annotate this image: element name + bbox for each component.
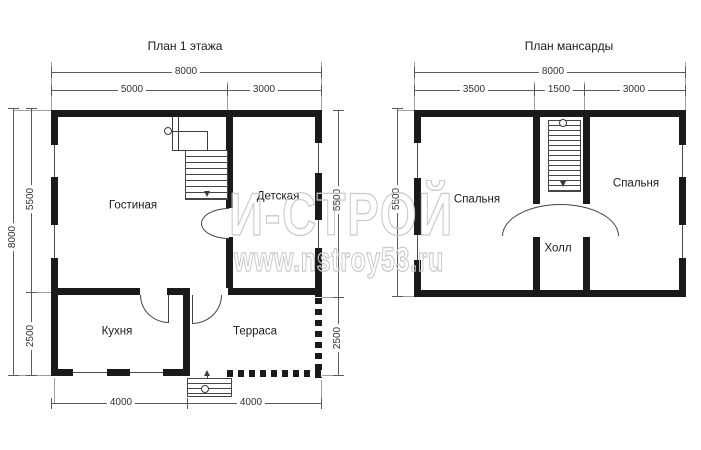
window: [51, 225, 58, 258]
dim-label-left-5500: 5500: [25, 185, 37, 213]
hall-wall-left: [533, 237, 540, 290]
door-swing-terrace: [192, 295, 222, 324]
hall-wall-right: [583, 237, 590, 290]
stair-guide-line: [178, 117, 179, 150]
outer-wall-left: [414, 110, 421, 297]
stair-guide-line: [172, 117, 173, 150]
dimension-tick: [333, 110, 344, 111]
porch-steps: [187, 378, 232, 397]
extension-line: [13, 110, 51, 111]
dimension-tick: [51, 85, 52, 96]
window: [51, 145, 58, 177]
dimension-tick: [333, 297, 344, 298]
dimension-tick: [414, 67, 415, 78]
kitchen-wall-right: [183, 295, 190, 376]
dimension-tick: [392, 108, 403, 109]
door-swing-kitchen: [140, 295, 169, 323]
plan1-title: План 1 этажа: [148, 40, 223, 52]
stair-start-circle: [164, 127, 172, 135]
dimension-tick: [187, 398, 188, 409]
dim-label-bottom-4000-right: 4000: [237, 397, 265, 409]
hall-arch-opening: [502, 204, 619, 236]
window: [414, 235, 421, 260]
room-label-kitchen: Кухня: [102, 326, 133, 338]
room-label-terrace: Терраса: [233, 326, 277, 338]
outer-wall-right: [315, 110, 322, 297]
dim-label-attic-5500: 5500: [391, 185, 403, 213]
outer-wall-bottom: [414, 290, 686, 297]
stair-landing-line: [173, 131, 207, 132]
dimension-tick: [584, 85, 585, 96]
dimension-tick: [26, 292, 37, 293]
window: [315, 220, 322, 248]
door-opening: [190, 288, 228, 295]
outer-wall-top: [51, 110, 322, 117]
dimension-tick: [321, 67, 322, 78]
interior-wall-vertical: [226, 117, 233, 288]
dim-label-top-8000: 8000: [172, 66, 200, 78]
dimension-line: [51, 90, 322, 91]
dimension-tick: [51, 67, 52, 78]
dimension-tick: [414, 85, 415, 96]
dimension-tick: [685, 67, 686, 78]
dimension-tick: [321, 398, 322, 409]
window: [679, 225, 686, 258]
dim-label-attic-3500: 3500: [460, 84, 488, 96]
dimension-tick: [8, 108, 19, 109]
dim-label-bottom-4000-left: 4000: [107, 397, 135, 409]
dimension-tick: [534, 85, 535, 96]
room-label-hall: Холл: [544, 243, 571, 255]
room-label-bedroom-right: Спальня: [613, 178, 659, 190]
plan2-title: План мансарды: [525, 40, 614, 52]
stair-arrow: [204, 191, 210, 197]
dim-label-attic-8000: 8000: [539, 66, 567, 78]
porch-arrow: [204, 370, 210, 376]
window: [73, 369, 107, 376]
dim-label-right-2500: 2500: [332, 324, 344, 352]
outer-wall-top: [414, 110, 686, 117]
window: [679, 145, 686, 177]
window: [130, 369, 163, 376]
interior-wall-horizontal: [51, 288, 322, 295]
dimension-tick: [51, 398, 52, 409]
stair-start-circle: [559, 119, 567, 127]
window: [414, 143, 421, 178]
dimension-tick: [26, 108, 37, 109]
room-label-bedroom-left: Спальня: [454, 194, 500, 206]
door-swing-kids-room: [201, 208, 229, 239]
window: [315, 143, 322, 173]
room-label-living: Гостиная: [109, 200, 157, 212]
dimension-tick: [8, 375, 19, 376]
stair-enclosure-wall-left: [533, 117, 540, 204]
stair-arrow: [560, 181, 566, 187]
dim-label-right-5500: 5500: [332, 186, 344, 214]
dashed-terrace-edge-right: [315, 298, 322, 378]
dim-label-left-2500: 2500: [25, 322, 37, 350]
dashed-terrace-edge-bottom: [227, 370, 322, 377]
dimension-tick: [321, 85, 322, 96]
room-label-kids: Детская: [257, 191, 300, 203]
dimension-tick: [333, 375, 344, 376]
dimension-tick: [26, 375, 37, 376]
stair-enclosure-wall-right: [583, 117, 590, 204]
dimension-tick: [227, 85, 228, 96]
porch-start-circle: [201, 385, 209, 393]
watermark-url: www.nstroy53.ru: [234, 243, 444, 277]
extension-line: [397, 110, 414, 111]
extension-line: [54, 378, 55, 404]
dim-label-3000: 3000: [250, 84, 278, 96]
dim-label-attic-1500: 1500: [545, 84, 573, 96]
dim-label-5000: 5000: [118, 84, 146, 96]
kitchen-wall-bottom: [51, 369, 190, 376]
dim-label-left-8000: 8000: [7, 223, 19, 251]
door-opening: [140, 288, 167, 295]
outer-wall-right: [679, 110, 686, 297]
dimension-tick: [685, 85, 686, 96]
dimension-tick: [392, 296, 403, 297]
dim-label-attic-3000: 3000: [620, 84, 648, 96]
floor-plan-image: План 1 этажа 8000: [0, 0, 701, 450]
